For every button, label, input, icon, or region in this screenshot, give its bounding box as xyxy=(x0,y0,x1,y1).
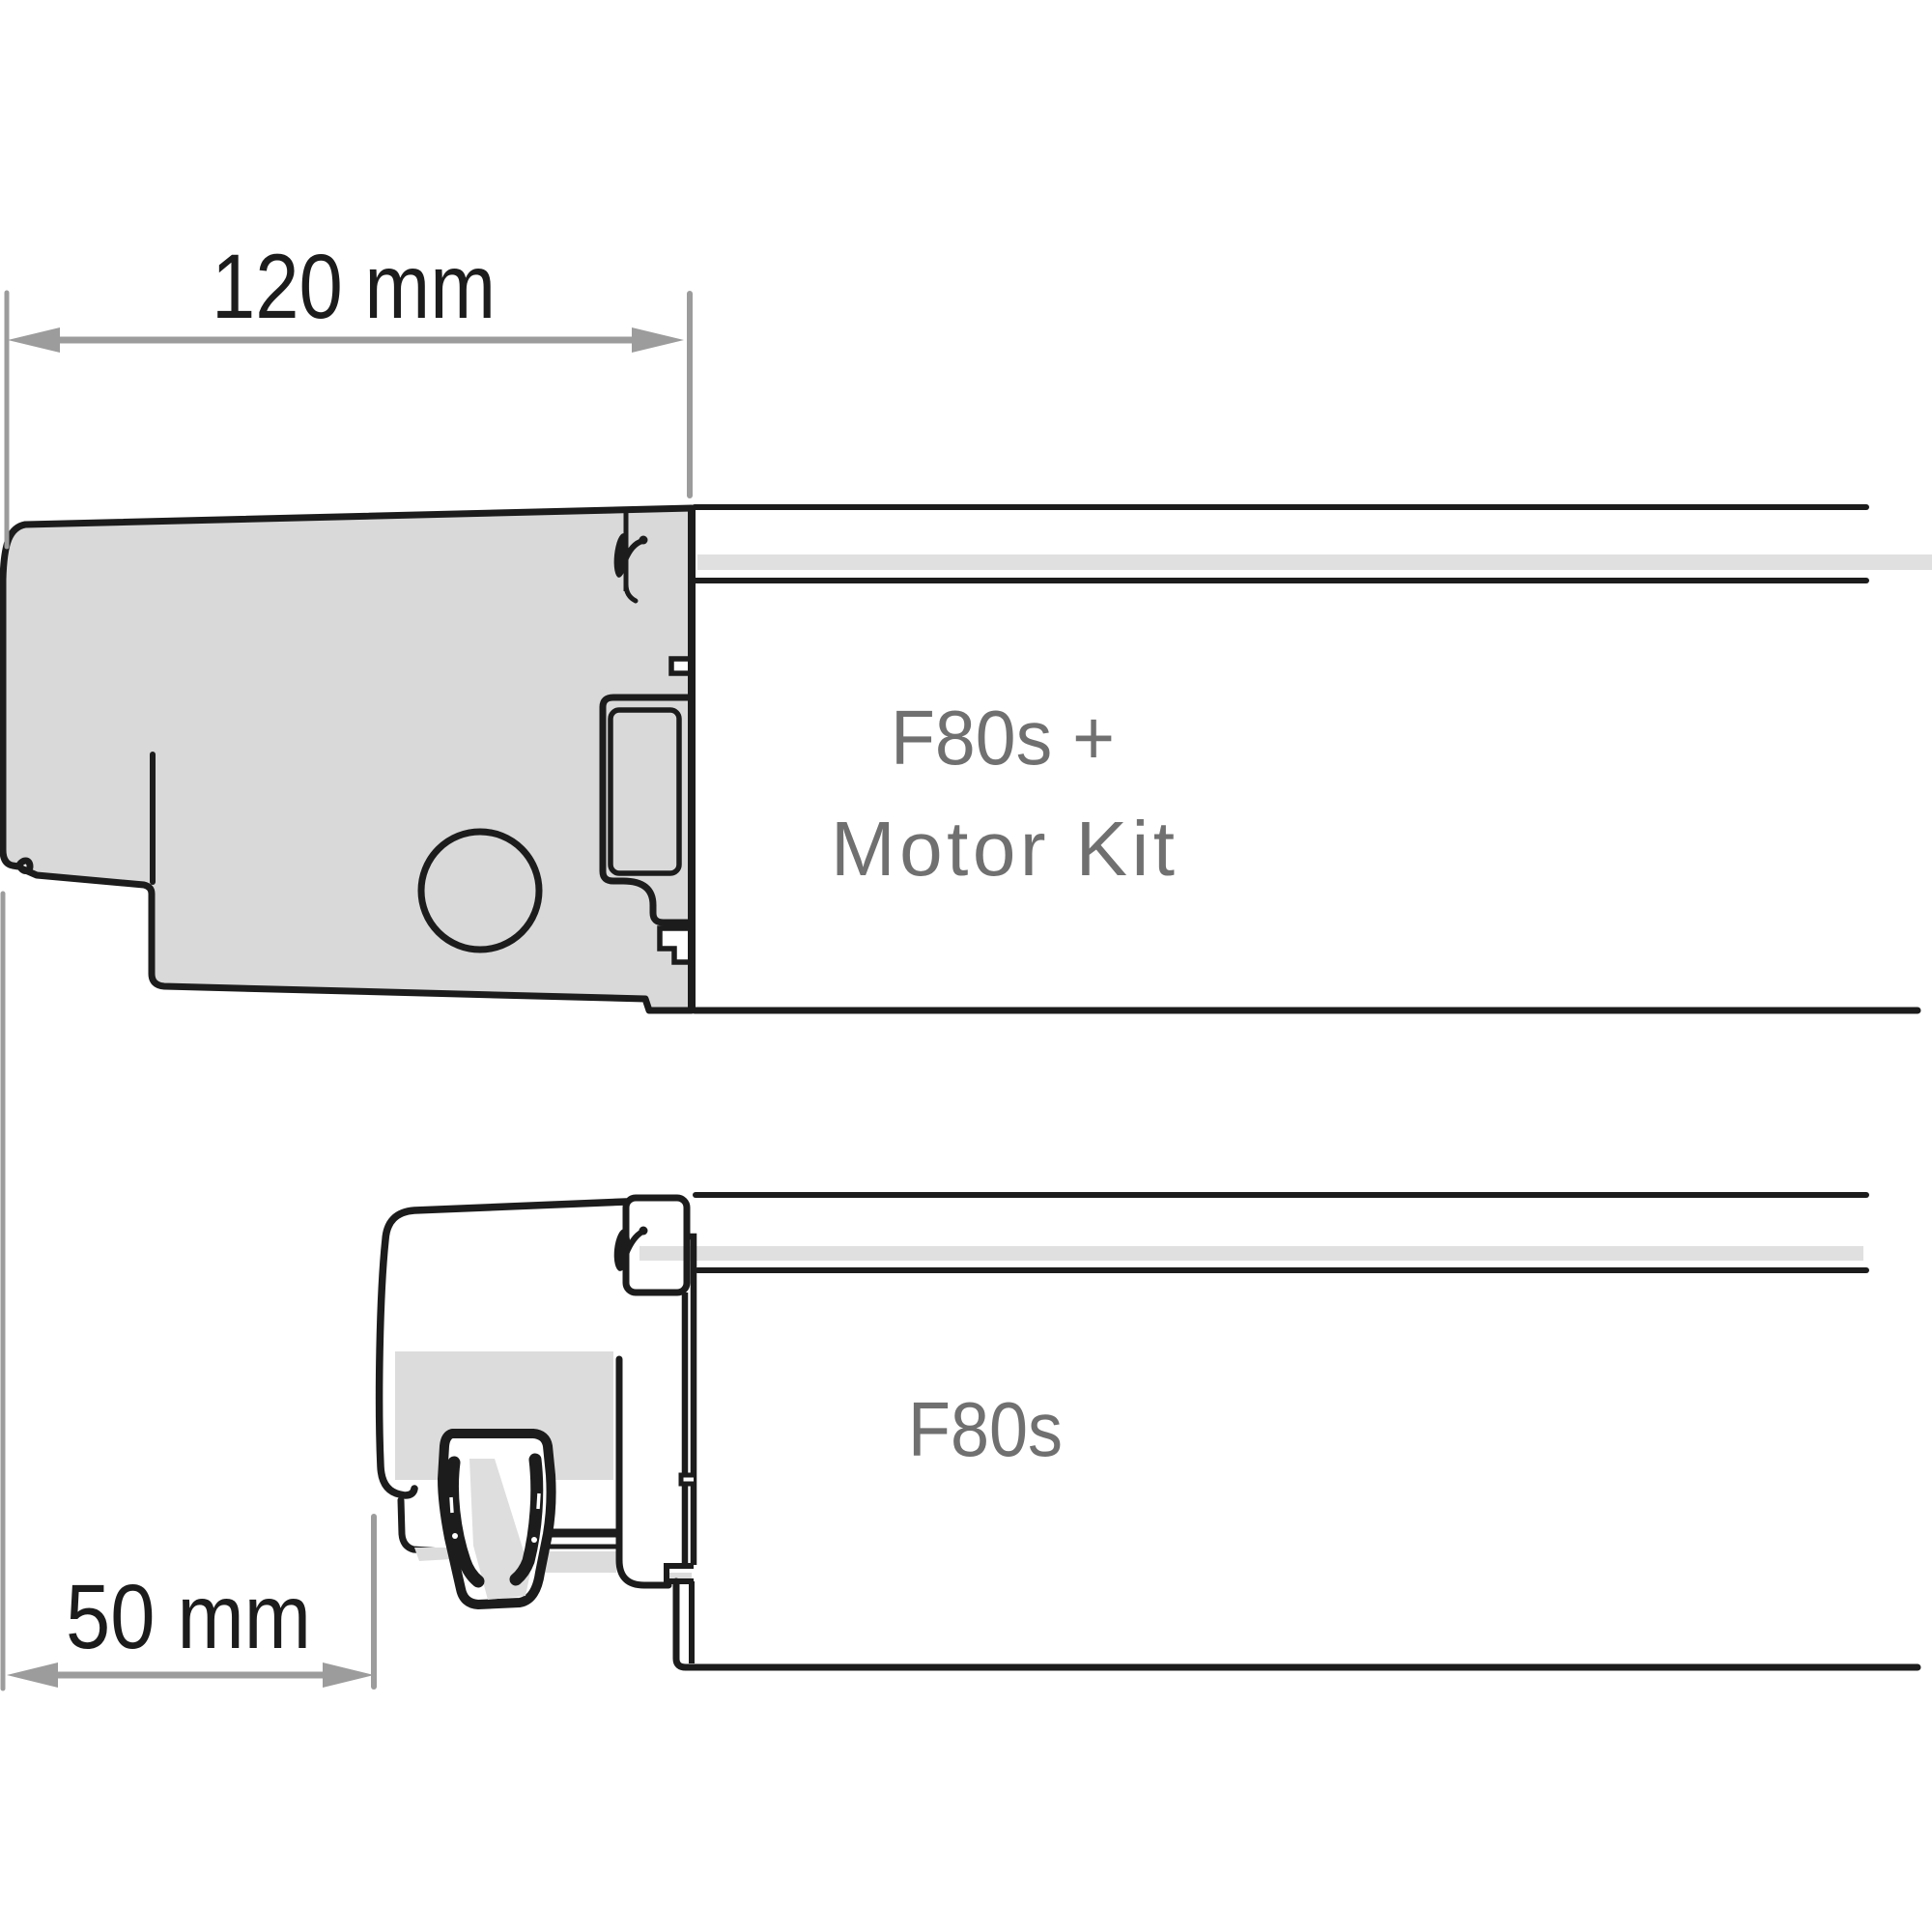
svg-text:Motor Kit: Motor Kit xyxy=(831,806,1175,892)
svg-text:50 mm: 50 mm xyxy=(66,1566,311,1668)
svg-text:120 mm: 120 mm xyxy=(212,236,496,338)
svg-text:F80s +: F80s + xyxy=(891,695,1115,781)
svg-text:F80s: F80s xyxy=(908,1386,1063,1472)
